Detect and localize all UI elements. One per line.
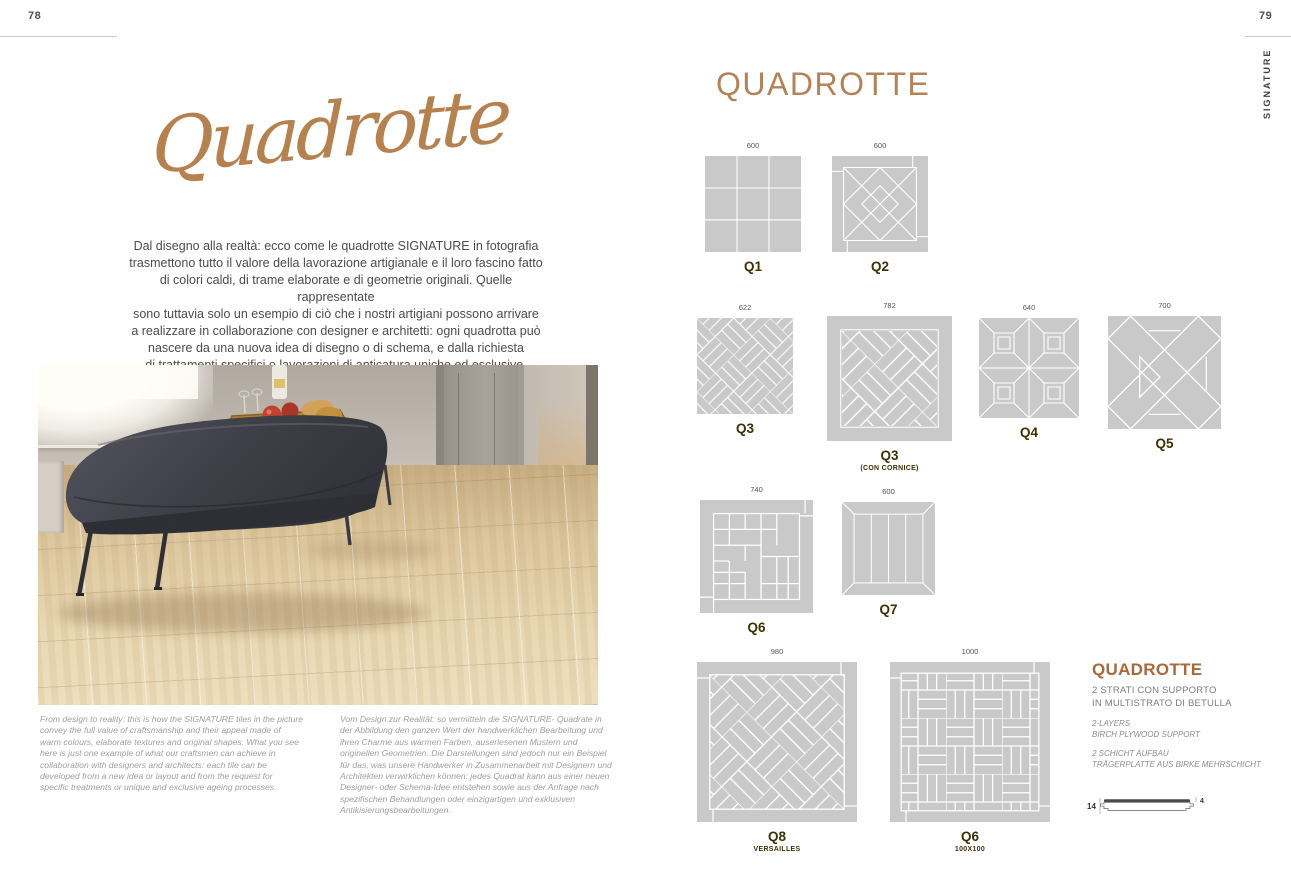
bench-leg <box>79 525 92 595</box>
tile-q3-cornice-diagram <box>827 316 952 441</box>
tile-label: Q7 <box>879 603 897 617</box>
tile-q5: 700 Q5 <box>1108 300 1221 451</box>
tile-q2-diagram <box>832 156 928 252</box>
profile-top-layer: 4 <box>1200 798 1204 805</box>
tile-label: Q1 <box>744 260 762 274</box>
plank-top-layer <box>1104 799 1190 802</box>
caption-english: From design to reality: this is how the … <box>40 714 303 794</box>
tile-dimension: 700 <box>1158 300 1171 316</box>
tile-label: Q3 <box>736 422 754 436</box>
tile-sublabel: (CON CORNICE) <box>860 465 918 472</box>
tile-q2: 600 Q2 <box>832 140 928 274</box>
tile-q1: 600 Q1 <box>705 140 801 274</box>
tile-dimension: 740 <box>750 484 763 500</box>
tile-q6-100-diagram <box>890 662 1050 822</box>
sidebar-collection-label: SIGNATURE <box>1262 45 1280 123</box>
info-heading: QUADROTTE <box>1092 660 1288 680</box>
bench-leg <box>385 465 390 505</box>
tile-dimension: 1000 <box>962 646 979 662</box>
tile-label: Q2 <box>871 260 889 274</box>
tile-label: Q4 <box>1020 426 1038 440</box>
header-rule-right <box>1245 36 1291 37</box>
caption-german: Vom Design zur Realität: so vermitteln d… <box>340 714 616 817</box>
photo-bench-illustration <box>38 365 598 705</box>
tile-label: Q6 <box>961 830 979 844</box>
info-german: 2 SCHICHT AUFBAUTRÄGERPLATTE AUS BIRKE M… <box>1092 749 1288 770</box>
tile-label: Q3 <box>880 449 898 463</box>
bottle-label <box>274 379 285 388</box>
tile-label: Q6 <box>747 621 765 635</box>
tile-q4: 640 Q4 <box>979 302 1079 440</box>
tile-dimension: 640 <box>1023 302 1036 318</box>
tile-label: Q5 <box>1155 437 1173 451</box>
tile-q5-diagram <box>1108 316 1221 429</box>
tile-q6-diagram <box>700 500 813 613</box>
tile-label: Q8 <box>768 830 786 844</box>
tile-dimension: 980 <box>771 646 784 662</box>
product-info-block: QUADROTTE 2 STRATI CON SUPPORTOIN MULTIS… <box>1092 660 1288 770</box>
tile-q4-diagram <box>979 318 1079 418</box>
tile-q6: 740 Q6 <box>700 484 813 635</box>
tile-q8-diagram <box>697 662 857 822</box>
info-english: 2-LAYERSBIRCH PLYWOOD SUPPORT <box>1092 719 1288 740</box>
plank-body <box>1101 802 1194 810</box>
tile-sublabel: VERSAILLES <box>754 846 801 853</box>
tile-q1-diagram <box>705 156 801 252</box>
header-rule-left <box>0 36 117 37</box>
tile-q7-diagram <box>842 502 935 595</box>
tile-q3-diagram <box>697 318 793 414</box>
info-italian: 2 STRATI CON SUPPORTOIN MULTISTRATO DI B… <box>1092 684 1288 710</box>
bench-shadow <box>58 593 428 633</box>
plank-profile-diagram: 14 4 <box>1083 791 1213 821</box>
intro-paragraph: Dal disegno alla realtà: ecco come le qu… <box>120 238 552 374</box>
tile-dimension: 600 <box>874 140 887 156</box>
interior-photo <box>38 365 598 705</box>
tile-dimension: 600 <box>747 140 760 156</box>
tile-dimension: 622 <box>739 302 752 318</box>
tile-q6-100: 1000 Q6 100X100 <box>890 646 1050 853</box>
tile-dimension: 600 <box>882 486 895 502</box>
tile-q3: 622 Q3 <box>697 302 793 436</box>
profile-total-thickness: 14 <box>1087 802 1096 811</box>
page-title-script: Quadrotte <box>140 61 520 201</box>
page-number-right: 79 <box>1259 10 1272 22</box>
tile-dimension: 782 <box>883 300 896 316</box>
page-number-left: 78 <box>28 10 41 22</box>
section-title: QUADROTTE <box>716 66 930 103</box>
catalog-spread: 78 Quadrotte Dal disegno alla realtà: ec… <box>0 0 1291 872</box>
tile-q7: 600 Q7 <box>842 486 935 617</box>
glasses <box>244 393 258 413</box>
tile-q3-cornice: 782 Q3 (CON CORNICE) <box>827 300 952 472</box>
tile-q8: 980 Q8 VERSAILLES <box>697 646 857 853</box>
tile-sublabel: 100X100 <box>955 846 985 853</box>
